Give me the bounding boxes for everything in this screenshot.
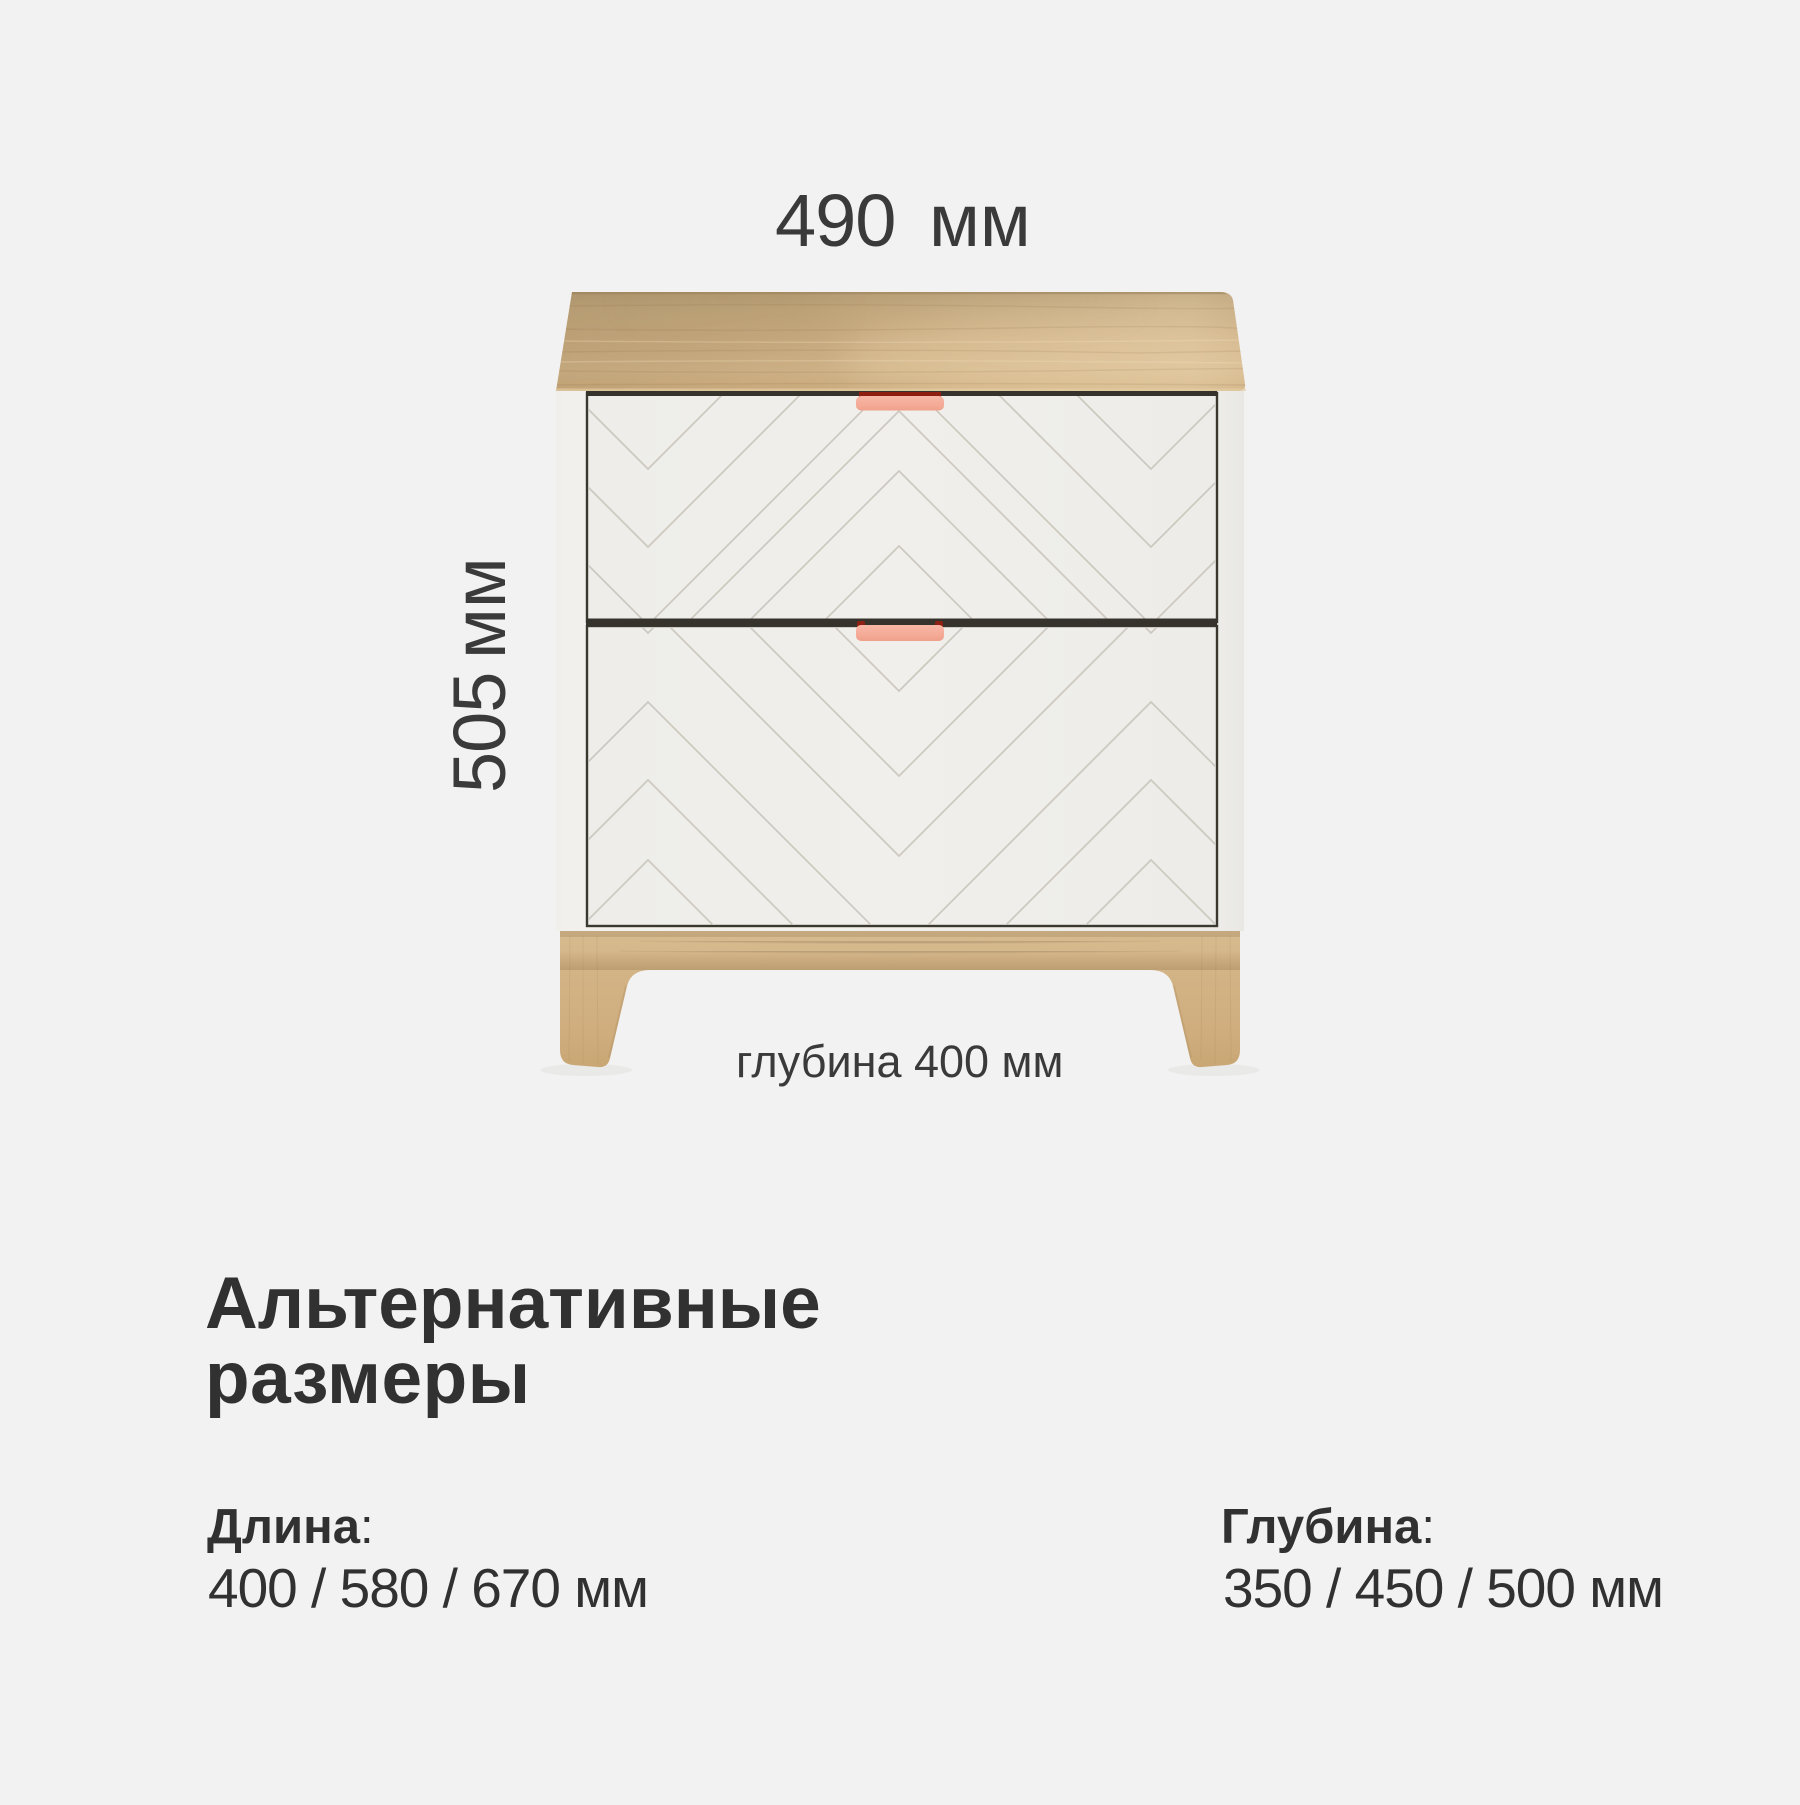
svg-text:Длина:: Длина: <box>207 1500 374 1554</box>
svg-text:размеры: размеры <box>205 1338 531 1419</box>
svg-text:глубина 400 мм: глубина 400 мм <box>736 1036 1063 1087</box>
svg-text:505: 505 <box>438 673 521 793</box>
svg-text:мм: мм <box>438 557 521 659</box>
svg-text:мм: мм <box>929 179 1031 262</box>
svg-text:490: 490 <box>775 179 895 262</box>
svg-text:350 / 450 / 500 мм: 350 / 450 / 500 мм <box>1223 1557 1663 1619</box>
svg-text:Глубина:: Глубина: <box>1221 1500 1435 1554</box>
svg-text:400 / 580 / 670 мм: 400 / 580 / 670 мм <box>208 1557 648 1619</box>
svg-text:Альтернативные: Альтернативные <box>205 1263 821 1344</box>
